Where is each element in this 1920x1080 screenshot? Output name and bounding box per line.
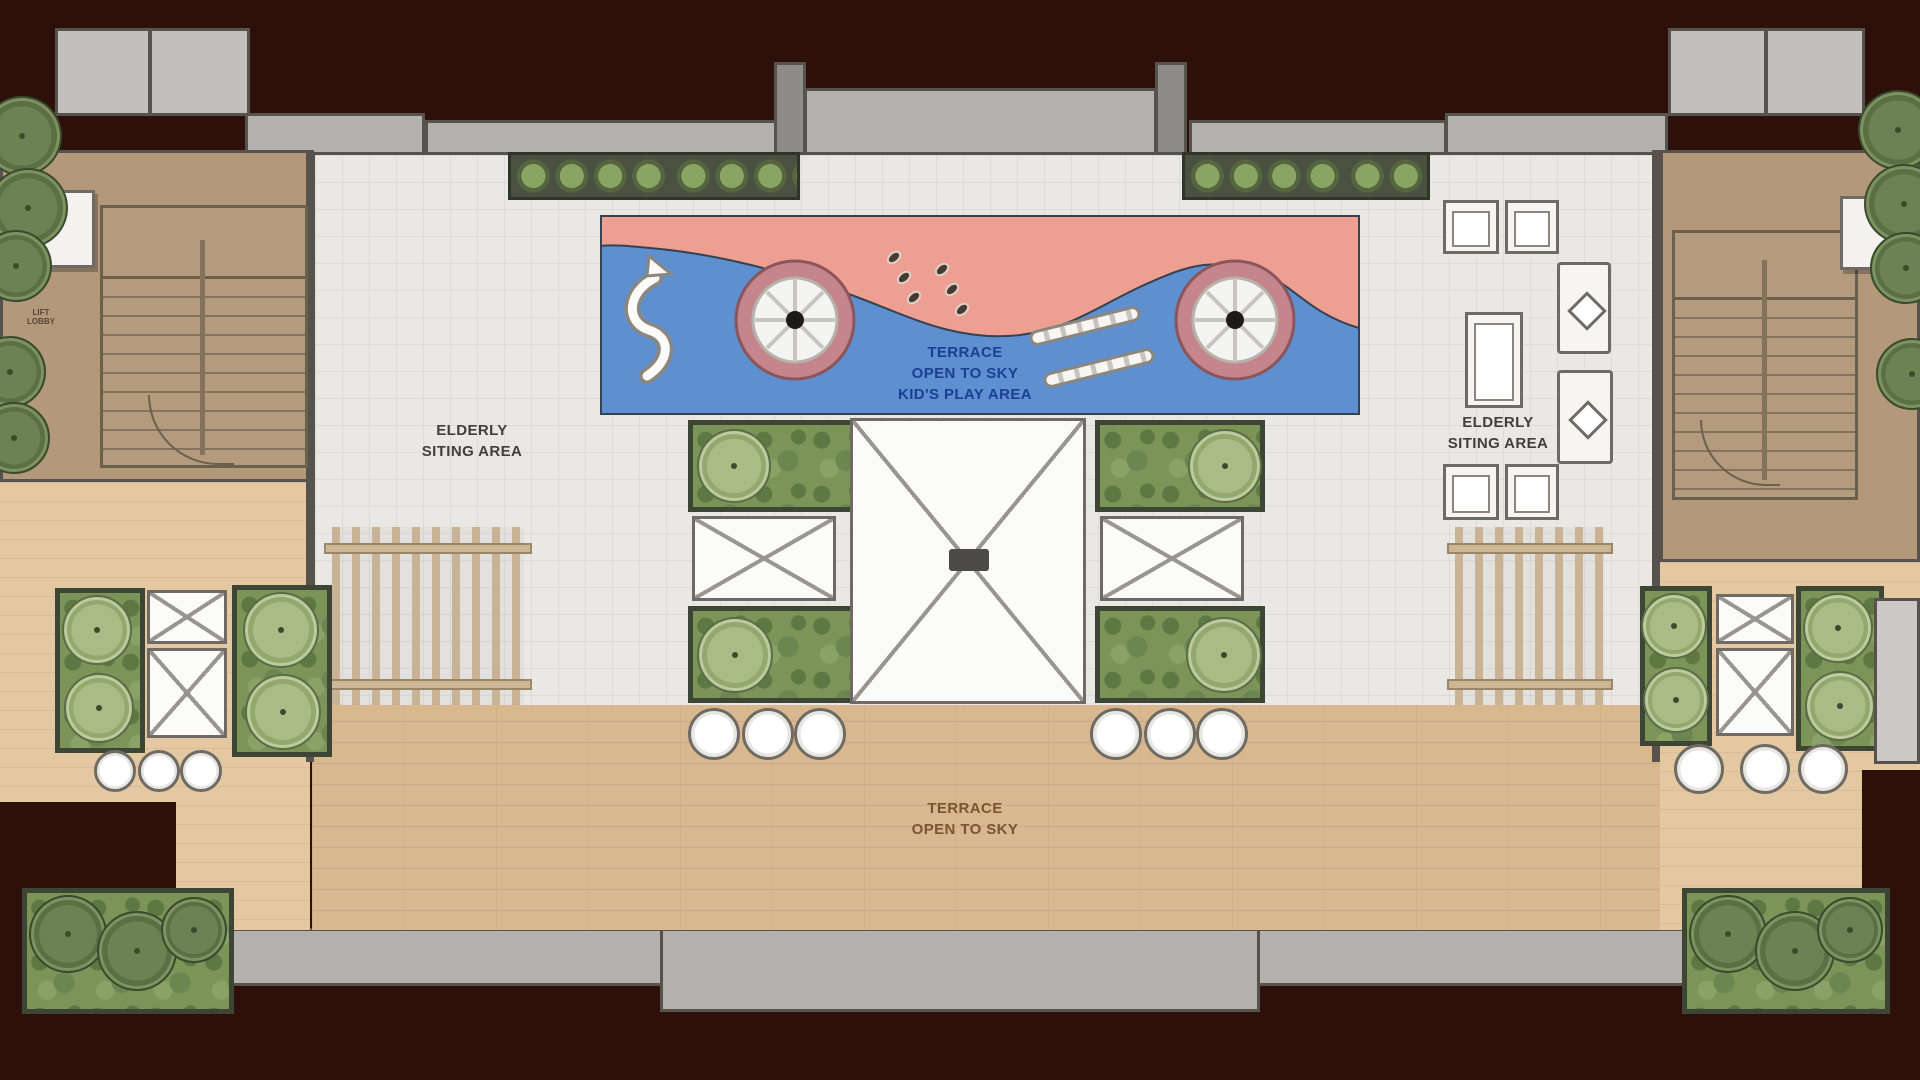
sofa: [1557, 262, 1611, 354]
rooftop-block: [1874, 598, 1920, 764]
tree-icon: [1641, 593, 1707, 659]
lift-shaft: [147, 590, 227, 644]
tree-icon: [243, 592, 319, 668]
skylight-hub: [949, 549, 989, 571]
stool: [1144, 708, 1196, 760]
table-with-plant: [1465, 312, 1523, 408]
tree-icon: [697, 429, 771, 503]
lift-shaft: [147, 648, 227, 738]
planter-box: [1640, 586, 1712, 746]
stool: [1740, 744, 1790, 794]
planter-strip-top-left: [508, 152, 800, 200]
planter-box: [1095, 606, 1265, 703]
tree-icon: [1803, 593, 1873, 663]
tree-icon: [1643, 667, 1709, 733]
elderly-sitting-area-right-label: ELDERLY SITING AREA: [1418, 412, 1578, 454]
tree-icon: [245, 674, 321, 750]
tree-icon: [62, 595, 132, 665]
stool: [688, 708, 740, 760]
stool: [1090, 708, 1142, 760]
tree-icon: [1689, 895, 1767, 973]
parapet-column: [1155, 62, 1187, 159]
tree-icon: [1817, 897, 1883, 963]
chair: [1443, 200, 1499, 254]
stool: [794, 708, 846, 760]
planter-box: [232, 585, 332, 757]
chair: [1505, 464, 1559, 520]
tree-icon: [1186, 617, 1262, 693]
pergola-rail: [1447, 679, 1613, 690]
tree-icon: [161, 897, 227, 963]
parapet-band: [804, 88, 1157, 159]
planter-box: [688, 420, 858, 512]
chair: [1443, 464, 1499, 520]
pergola-rail: [324, 543, 532, 554]
terrace-open-to-sky-label: TERRACE OPEN TO SKY: [865, 798, 1065, 840]
planter-box: [1682, 888, 1890, 1014]
tree-icon: [1805, 671, 1875, 741]
parapet-column: [774, 62, 806, 159]
planter-box: [55, 588, 145, 753]
merry-go-round-icon: [1173, 258, 1297, 382]
pergola-right: [1455, 527, 1605, 705]
chair: [1505, 200, 1559, 254]
stool: [1196, 708, 1248, 760]
planter-box: [688, 606, 858, 703]
rooftop-block-top-left: [55, 28, 250, 116]
planter-box: [1796, 586, 1884, 751]
slide-icon: [615, 242, 691, 398]
plant-icon: [1481, 346, 1507, 372]
skylight-canopy: [692, 516, 836, 601]
stool: [1674, 744, 1724, 794]
planter-box: [22, 888, 234, 1014]
wall-divider: [1764, 30, 1768, 114]
stool: [180, 750, 222, 792]
stool: [742, 708, 794, 760]
merry-go-round-icon: [733, 258, 857, 382]
lift-shaft: [1716, 594, 1794, 644]
pergola-rail: [324, 679, 532, 690]
kids-play-area-label: TERRACE OPEN TO SKY KID'S PLAY AREA: [840, 342, 1090, 405]
lift-shaft: [1716, 648, 1794, 736]
skylight-canopy: [1100, 516, 1244, 601]
stool: [138, 750, 180, 792]
tree-icon: [29, 895, 107, 973]
terrace-floor-plan: TERRACE OPEN TO SKY KID'S PLAY AREA ELDE…: [0, 0, 1920, 1080]
planter-strip-top-right: [1182, 152, 1430, 200]
tree-icon: [1188, 429, 1262, 503]
parapet-band-bottom-bump: [660, 928, 1260, 1012]
pergola-left: [332, 527, 524, 705]
central-skylight: [850, 418, 1086, 704]
stool: [1798, 744, 1848, 794]
stool: [94, 750, 136, 792]
tree-icon: [64, 673, 134, 743]
planter-box: [1095, 420, 1265, 512]
tree-icon: [697, 617, 773, 693]
pergola-rail: [1447, 543, 1613, 554]
elderly-sitting-area-left-label: ELDERLY SITING AREA: [392, 420, 552, 462]
lift-lobby-label: LIFT LOBBY: [8, 308, 74, 326]
wall-divider: [148, 30, 152, 114]
sofa: [1557, 370, 1613, 464]
